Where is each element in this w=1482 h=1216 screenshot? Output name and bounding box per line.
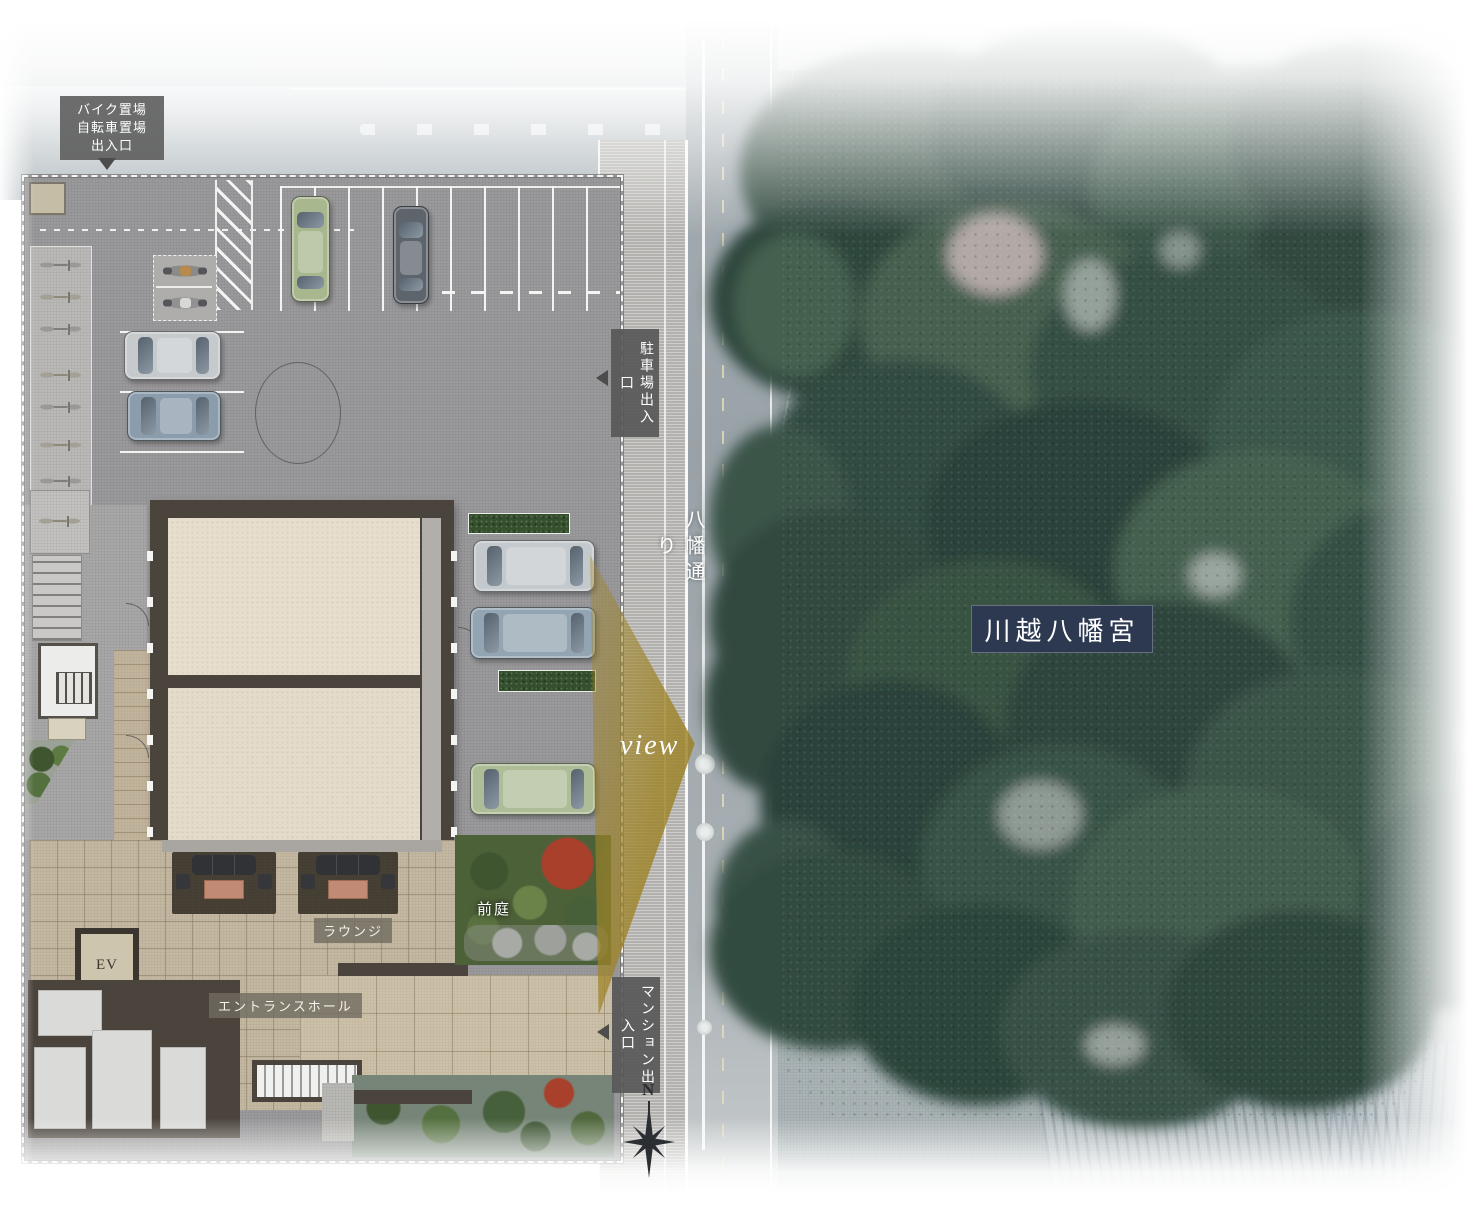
bike-entrance-label: バイク置場 自転車置場 出入口	[60, 96, 164, 160]
mansion-entrance-label: マンション出入口	[612, 977, 660, 1093]
fog-right	[1360, 0, 1482, 1216]
lounge-label: ラウンジ	[314, 918, 392, 943]
bike-entrance-pointer-icon	[98, 158, 116, 170]
compass-north-label: N	[642, 1080, 654, 1100]
front-garden-label: 前庭	[477, 898, 511, 919]
compass-star-icon	[621, 1104, 677, 1180]
entrance-hall-label: エントランスホール	[209, 993, 362, 1018]
fog-left	[0, 0, 34, 1216]
mansion-entrance-pointer-icon	[597, 1024, 609, 1040]
parking-exit-pointer-icon	[596, 370, 608, 386]
street-name-label: 八幡通り	[650, 498, 708, 598]
site-plan-map: EV バイク置場 自転車置場 出入口 駐車場出入口 八幡通り view 川越八幡…	[0, 0, 1482, 1216]
shrine-label: 川越八幡宮	[971, 605, 1153, 653]
parking-exit-label: 駐車場出入口	[611, 329, 659, 437]
view-label: view	[620, 730, 679, 762]
fog-bottom	[0, 1118, 1482, 1216]
